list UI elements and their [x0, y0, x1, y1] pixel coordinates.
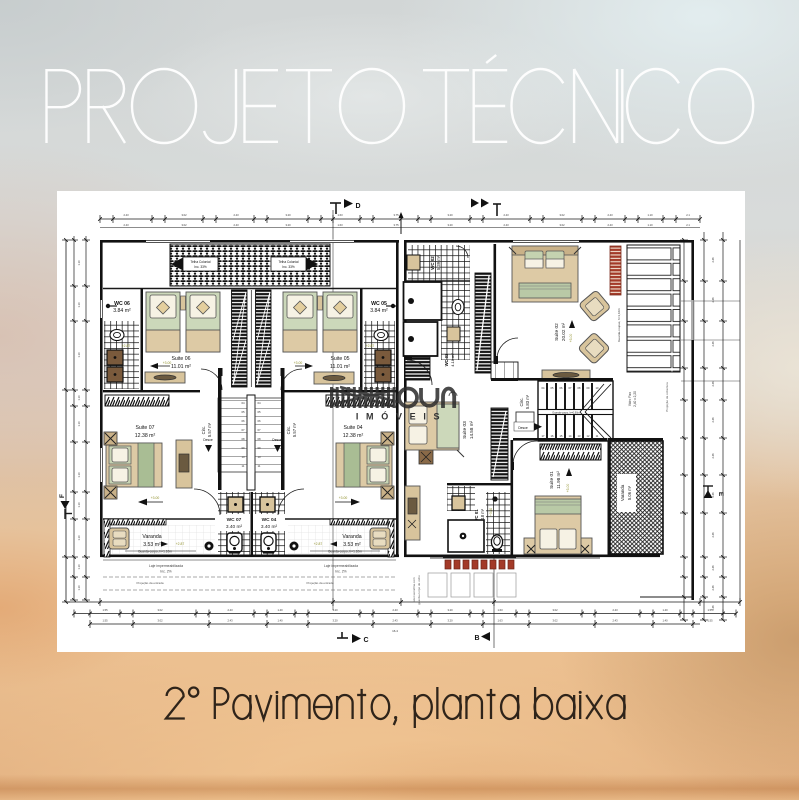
svg-text:5.83 m²: 5.83 m²	[525, 394, 530, 409]
svg-text:1.10: 1.10	[77, 395, 81, 401]
svg-text:Guarda-corpo, h=1.10m: Guarda-corpo, h=1.10m	[328, 550, 362, 554]
svg-text:Desce: Desce	[518, 426, 528, 430]
svg-text:2.46: 2.46	[711, 341, 715, 347]
svg-text:1.10: 1.10	[647, 213, 653, 217]
svg-text:Projeção da cobertura: Projeção da cobertura	[665, 382, 669, 412]
svg-text:2.46: 2.46	[711, 453, 715, 459]
svg-text:3.53 m²: 3.53 m²	[343, 542, 361, 548]
svg-text:08: 08	[257, 437, 261, 441]
svg-text:Laje impermeabilizada: Laje impermeabilizada	[324, 564, 358, 568]
svg-text:1.10: 1.10	[77, 352, 81, 358]
svg-text:Varanda: Varanda	[342, 534, 361, 540]
svg-text:Inc. 33%: Inc. 33%	[282, 265, 295, 269]
svg-text:1.10: 1.10	[647, 223, 653, 227]
svg-text:1.10: 1.10	[77, 302, 81, 308]
svg-text:3.20: 3.20	[447, 608, 453, 612]
svg-text:1.63: 1.63	[337, 223, 343, 227]
svg-text:3.40 m²: 3.40 m²	[226, 524, 243, 530]
svg-text:3.75: 3.75	[393, 213, 399, 217]
svg-text:2.46: 2.46	[711, 532, 715, 538]
svg-text:Inc. 2%: Inc. 2%	[335, 570, 346, 574]
svg-text:Suite 04: Suite 04	[343, 425, 362, 431]
svg-text:2.43: 2.43	[233, 213, 239, 217]
svg-text:11.01 m²: 11.01 m²	[171, 364, 191, 370]
svg-text:2.43: 2.43	[607, 223, 613, 227]
svg-text:11: 11	[242, 464, 245, 468]
svg-text:Varanda: Varanda	[142, 534, 161, 540]
svg-text:3.40 m²: 3.40 m²	[261, 524, 278, 530]
svg-text:I M Ó V E I S: I M Ó V E I S	[356, 411, 442, 422]
svg-text:2.46: 2.46	[711, 297, 715, 303]
svg-text:WC 07: WC 07	[227, 517, 242, 523]
svg-text:1.10: 1.10	[77, 421, 81, 427]
svg-text:3.75: 3.75	[393, 223, 399, 227]
svg-text:Projeção da entrada: Projeção da entrada	[306, 581, 333, 585]
svg-text:1.40: 1.40	[662, 608, 668, 612]
svg-text:1.55: 1.55	[707, 619, 713, 623]
svg-text:2.43: 2.43	[607, 213, 613, 217]
svg-text:D: D	[355, 203, 360, 210]
svg-text:08: 08	[241, 437, 245, 441]
svg-text:5.39 m²: 5.39 m²	[436, 255, 441, 270]
svg-text:05: 05	[241, 410, 245, 414]
svg-text:2.43: 2.43	[123, 223, 129, 227]
svg-text:1.10: 1.10	[77, 585, 81, 591]
svg-text:lazer.serrafina.com: lazer.serrafina.com	[412, 577, 416, 603]
svg-text:2.43: 2.43	[612, 619, 618, 623]
svg-text:3.20: 3.20	[447, 619, 453, 623]
svg-text:3.84 m²: 3.84 m²	[113, 308, 131, 314]
svg-text:C: C	[363, 637, 368, 644]
svg-text:3.02: 3.02	[552, 619, 558, 623]
svg-text:2,40 x 2,20: 2,40 x 2,20	[633, 391, 637, 407]
svg-text:10: 10	[257, 455, 261, 459]
svg-text:WC 05: WC 05	[371, 301, 387, 307]
svg-text:09: 09	[257, 446, 261, 450]
svg-text:2.43: 2.43	[503, 213, 509, 217]
svg-text:3.02: 3.02	[157, 619, 163, 623]
svg-text:Suite 07: Suite 07	[135, 425, 154, 431]
svg-text:3.53 m²: 3.53 m²	[143, 542, 161, 548]
svg-text:3.20: 3.20	[447, 223, 453, 227]
svg-text:3.84 m²: 3.84 m²	[370, 308, 388, 314]
svg-text:1.10: 1.10	[77, 535, 81, 541]
svg-text:2.46: 2.46	[711, 585, 715, 591]
svg-text:3.02: 3.02	[181, 213, 187, 217]
svg-text:1.10: 1.10	[77, 502, 81, 508]
svg-text:3.20: 3.20	[285, 223, 291, 227]
svg-text:E: E	[717, 492, 724, 497]
svg-text:04: 04	[241, 401, 245, 405]
svg-text:11.98 m²: 11.98 m²	[556, 471, 561, 489]
svg-text:3.02: 3.02	[559, 213, 565, 217]
svg-text:Suite 05: Suite 05	[330, 356, 349, 362]
svg-text:2.43: 2.43	[392, 608, 398, 612]
svg-text:10: 10	[241, 455, 245, 459]
svg-text:+3.00: +3.00	[163, 361, 172, 365]
svg-text:guarda-corpo de vidro: guarda-corpo de vidro	[417, 575, 421, 605]
svg-text:07: 07	[257, 428, 261, 432]
svg-text:2.43: 2.43	[503, 223, 509, 227]
svg-text:2.43: 2.43	[612, 608, 618, 612]
svg-text:2.43: 2.43	[392, 619, 398, 623]
svg-text:12.38 m²: 12.38 m²	[343, 433, 364, 439]
svg-text:Vidro Fixo: Vidro Fixo	[628, 392, 632, 407]
svg-text:1.55: 1.55	[102, 608, 108, 612]
svg-text:Suite 03: Suite 03	[462, 421, 468, 439]
svg-text:3.02: 3.02	[559, 223, 565, 227]
svg-text:3.02: 3.02	[552, 608, 558, 612]
svg-text:Suite 02: Suite 02	[554, 323, 560, 341]
svg-text:3.20: 3.20	[285, 213, 291, 217]
svg-text:WC 03: WC 03	[444, 353, 449, 366]
svg-text:Suite 06: Suite 06	[171, 356, 190, 362]
svg-text:3.20: 3.20	[332, 619, 338, 623]
svg-text:4.18 m²: 4.18 m²	[450, 353, 455, 367]
svg-text:2.46: 2.46	[711, 565, 715, 571]
svg-text:Circ.: Circ.	[286, 426, 291, 435]
svg-text:12.38 m²: 12.38 m²	[135, 433, 156, 439]
svg-text:2.43: 2.43	[123, 213, 129, 217]
svg-text:Guarda-corpo, h=0,90m: Guarda-corpo, h=0,90m	[552, 411, 580, 415]
svg-text:2.46: 2.46	[711, 257, 715, 263]
svg-text:Circ.: Circ.	[519, 397, 524, 406]
svg-text:3.02: 3.02	[181, 223, 187, 227]
svg-text:Laje impermeabilizada: Laje impermeabilizada	[149, 564, 183, 568]
svg-text:2.43: 2.43	[233, 223, 239, 227]
svg-text:1.40: 1.40	[277, 619, 283, 623]
svg-text:2.1: 2.1	[686, 213, 690, 217]
svg-text:B: B	[474, 635, 479, 642]
svg-text:05: 05	[257, 410, 261, 414]
svg-text:2.46: 2.46	[711, 417, 715, 423]
svg-text:3.02: 3.02	[157, 608, 163, 612]
svg-text:3.20: 3.20	[447, 213, 453, 217]
svg-text:20.02 m²: 20.02 m²	[561, 322, 566, 341]
svg-text:Guarda-roupas, h=1,10m: Guarda-roupas, h=1,10m	[617, 308, 621, 342]
svg-text:2.1: 2.1	[686, 223, 690, 227]
svg-text:11: 11	[258, 464, 261, 468]
svg-text:+3.00: +3.00	[339, 496, 348, 500]
svg-text:2.43: 2.43	[227, 608, 233, 612]
svg-text:5.57 m²: 5.57 m²	[292, 422, 297, 437]
svg-text:Projeção da entrada: Projeção da entrada	[136, 581, 163, 585]
svg-text:+2.87: +2.87	[366, 344, 375, 348]
svg-text:Telha Colonial: Telha Colonial	[278, 260, 298, 264]
svg-text:1.55: 1.55	[707, 608, 713, 612]
svg-text:06: 06	[241, 419, 245, 423]
svg-text:3.20: 3.20	[332, 608, 338, 612]
svg-text:1.10: 1.10	[77, 260, 81, 266]
svg-text:Desce: Desce	[272, 438, 282, 442]
svg-text:06: 06	[257, 419, 261, 423]
svg-text:+3.00: +3.00	[569, 334, 573, 343]
svg-text:Suite 01: Suite 01	[549, 471, 555, 489]
svg-text:Guarda-corpo, h=1,10m: Guarda-corpo, h=1,10m	[648, 486, 652, 516]
svg-text:+2.87: +2.87	[176, 542, 185, 546]
svg-text:1.10: 1.10	[77, 472, 81, 478]
svg-text:09: 09	[241, 446, 245, 450]
svg-text:Telha Colonial: Telha Colonial	[190, 260, 210, 264]
svg-text:11.01 m²: 11.01 m²	[330, 364, 350, 370]
svg-text:14.58 m²: 14.58 m²	[469, 420, 474, 439]
svg-text:1.10: 1.10	[77, 564, 81, 570]
svg-text:F: F	[59, 494, 66, 498]
svg-text:+2.87: +2.87	[314, 542, 323, 546]
svg-text:1.63: 1.63	[497, 619, 503, 623]
svg-text:1.55: 1.55	[102, 619, 108, 623]
svg-text:Inc. 2%: Inc. 2%	[160, 570, 171, 574]
svg-text:WC 02: WC 02	[430, 256, 435, 270]
svg-text:Varanda: Varanda	[620, 484, 625, 501]
svg-text:2.46: 2.46	[711, 381, 715, 387]
svg-text:Desce: Desce	[203, 438, 213, 442]
svg-text:Guarda-corpo, h=1.10m: Guarda-corpo, h=1.10m	[138, 550, 172, 554]
svg-text:+3.00: +3.00	[151, 496, 160, 500]
svg-text:1.40: 1.40	[662, 619, 668, 623]
svg-text:5.06 m²: 5.06 m²	[627, 485, 632, 500]
svg-text:Inc. 33%: Inc. 33%	[194, 265, 207, 269]
svg-text:2.43: 2.43	[227, 619, 233, 623]
svg-text:07: 07	[241, 428, 245, 432]
svg-text:+3.00: +3.00	[566, 484, 570, 493]
svg-text:+3.00: +3.00	[294, 361, 303, 365]
svg-text:1.63: 1.63	[497, 608, 503, 612]
svg-text:WC 04: WC 04	[262, 517, 277, 523]
svg-text:+2.87: +2.87	[122, 344, 131, 348]
svg-text:1.40: 1.40	[277, 608, 283, 612]
svg-text:Circ.: Circ.	[201, 426, 206, 435]
svg-text:1.63: 1.63	[337, 213, 343, 217]
svg-text:04: 04	[257, 401, 261, 405]
svg-text:5.57 m²: 5.57 m²	[207, 422, 212, 437]
svg-text:16.4: 16.4	[392, 629, 398, 633]
